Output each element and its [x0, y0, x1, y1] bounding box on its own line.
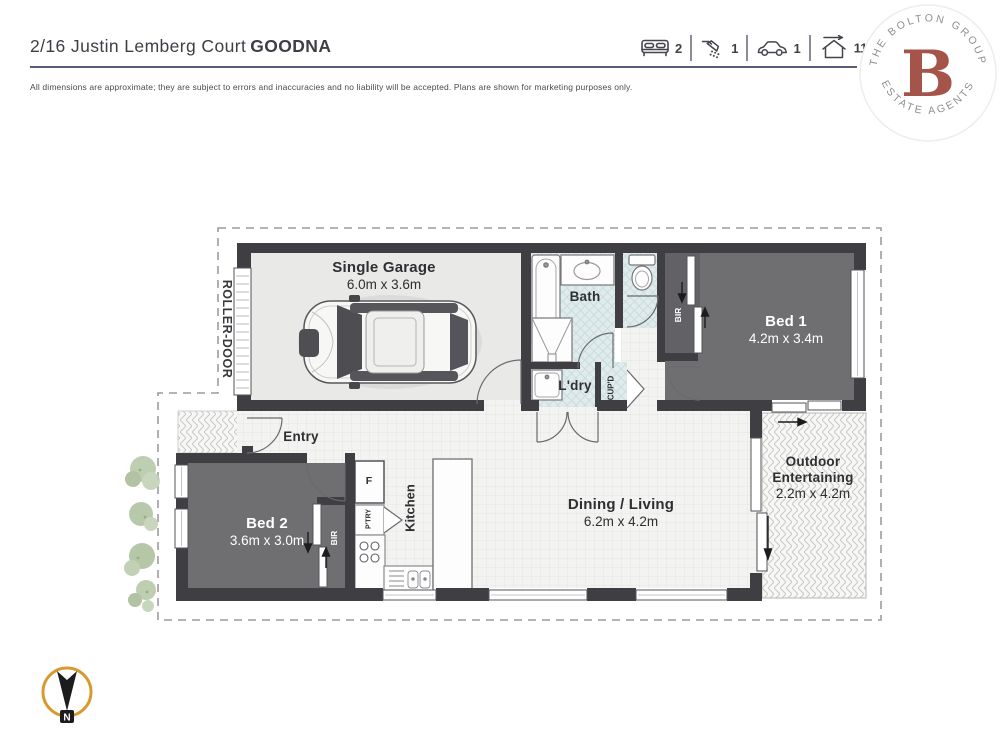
outdoor-paving	[762, 413, 866, 598]
roller-door-label: ROLLER-DOOR	[220, 280, 234, 379]
roller-door	[234, 268, 251, 395]
dining-living-name: Dining / Living	[568, 496, 674, 514]
kitchen-label: Kitchen	[403, 484, 418, 532]
outdoor-dims: 2.2m x 4.2m	[754, 486, 872, 502]
bed2-name: Bed 2	[230, 515, 304, 533]
island-bench	[433, 459, 472, 591]
outdoor-label: Outdoor Entertaining 2.2m x 4.2m	[754, 454, 872, 502]
laundry-label: L'dry	[558, 378, 591, 394]
entry-label: Entry	[283, 429, 319, 445]
bed2-dims: 3.6m x 3.0m	[230, 533, 304, 549]
floorplan-page: 2/16 Justin Lemberg CourtGOODNA All dime…	[0, 0, 1000, 750]
dining-living-label: Dining / Living 6.2m x 4.2m	[568, 496, 674, 530]
compass-needle	[57, 671, 77, 711]
bed1-name: Bed 1	[749, 313, 823, 331]
cupboard-label: CUP'D	[607, 376, 616, 401]
car-top-view	[298, 295, 482, 389]
garage-dims: 6.0m x 3.6m	[332, 277, 435, 293]
outdoor-name: Outdoor Entertaining	[754, 454, 872, 486]
entry-name: Entry	[283, 429, 319, 445]
fridge-label: F	[366, 475, 372, 487]
garden-plants	[124, 456, 160, 612]
entry-porch-paving	[178, 411, 245, 453]
bed2-label: Bed 2 3.6m x 3.0m	[230, 515, 304, 549]
laundry-name: L'dry	[558, 378, 591, 394]
bed1-bir-label: BIR	[673, 308, 683, 323]
garage-label: Single Garage 6.0m x 3.6m	[332, 259, 435, 293]
bed2-bir-label: BIR	[329, 531, 339, 546]
dining-living-dims: 6.2m x 4.2m	[568, 514, 674, 530]
pantry-label: P'TRY	[366, 509, 373, 529]
north-label: N	[63, 713, 70, 724]
floorplan-svg: N	[0, 0, 1000, 750]
toilet	[629, 255, 655, 265]
north-indicator: N	[43, 668, 91, 724]
garage-name: Single Garage	[332, 259, 435, 277]
bed1-dims: 4.2m x 3.4m	[749, 331, 823, 347]
bed1-label: Bed 1 4.2m x 3.4m	[749, 313, 823, 347]
bath-name: Bath	[570, 289, 601, 305]
kitchen-bench	[355, 535, 385, 592]
bath-label: Bath	[570, 289, 601, 305]
